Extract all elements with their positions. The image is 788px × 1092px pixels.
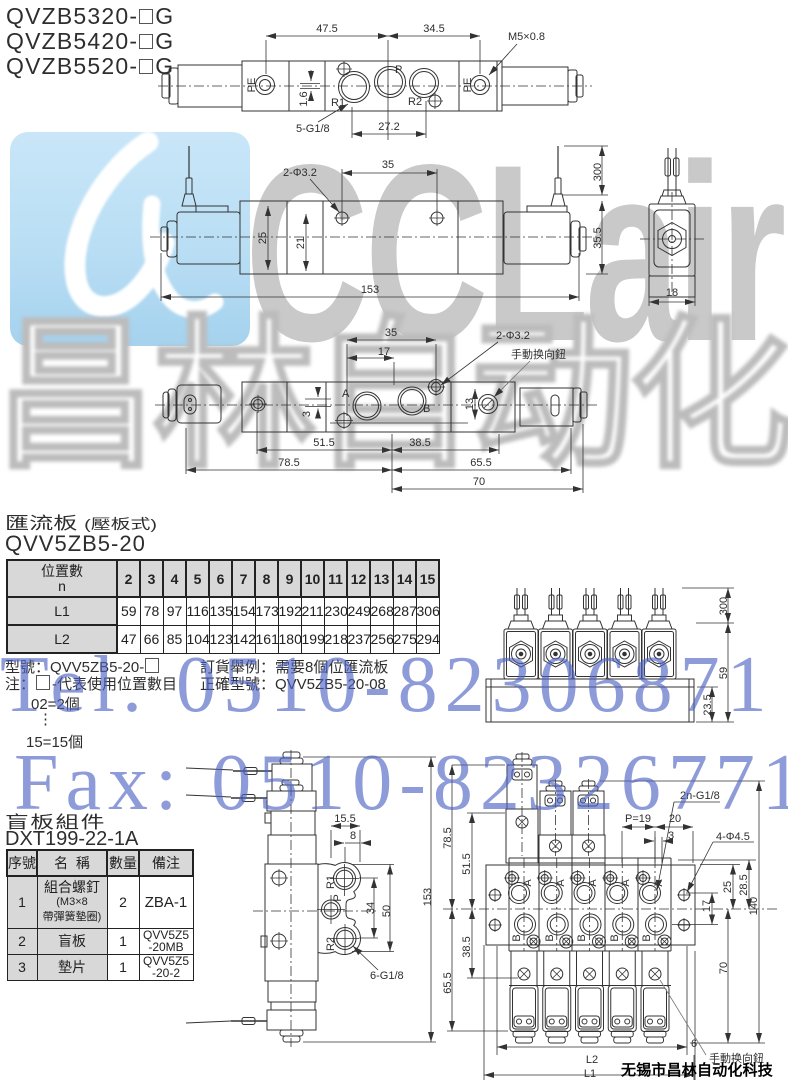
- svg-text:17: 17: [701, 900, 713, 912]
- svg-text:R2: R2: [325, 937, 337, 951]
- svg-text:8: 8: [350, 830, 356, 842]
- svg-text:34.5: 34.5: [423, 23, 444, 35]
- svg-text:手動换向鈕: 手動换向鈕: [511, 347, 566, 361]
- svg-text:25: 25: [722, 881, 734, 893]
- svg-text:4-Φ4.5: 4-Φ4.5: [716, 831, 750, 843]
- svg-text:L2: L2: [586, 1054, 598, 1066]
- svg-text:78.5: 78.5: [278, 457, 299, 469]
- svg-text:35: 35: [385, 327, 397, 339]
- svg-text:2-Φ3.2: 2-Φ3.2: [496, 330, 530, 342]
- svg-text:27.2: 27.2: [378, 121, 399, 133]
- svg-text:B: B: [576, 934, 588, 941]
- svg-text:1.6: 1.6: [298, 91, 310, 106]
- svg-text:35: 35: [382, 159, 394, 171]
- svg-text:A: A: [522, 879, 534, 887]
- svg-text:A: A: [555, 879, 567, 887]
- svg-text:70: 70: [473, 476, 485, 488]
- svg-text:28.5: 28.5: [738, 874, 750, 895]
- svg-text:5-G1/8: 5-G1/8: [296, 123, 330, 135]
- svg-text:153: 153: [422, 888, 434, 906]
- svg-text:M5×0.8: M5×0.8: [508, 31, 545, 43]
- svg-text:13: 13: [464, 398, 476, 410]
- svg-text:65.5: 65.5: [442, 972, 454, 993]
- svg-text:B: B: [423, 403, 430, 415]
- svg-text:51.5: 51.5: [313, 437, 334, 449]
- svg-text:21: 21: [295, 237, 307, 249]
- svg-text:A: A: [342, 388, 350, 400]
- svg-text:47.5: 47.5: [316, 23, 337, 35]
- svg-text:2n-G1/8: 2n-G1/8: [680, 790, 720, 802]
- svg-text:38.5: 38.5: [461, 936, 473, 957]
- svg-text:2-Φ3.2: 2-Φ3.2: [283, 167, 317, 179]
- svg-text:38.5: 38.5: [409, 437, 430, 449]
- svg-text:34: 34: [365, 902, 377, 914]
- svg-text:78.5: 78.5: [442, 827, 454, 848]
- svg-text:50: 50: [381, 905, 393, 917]
- svg-text:B: B: [544, 934, 556, 941]
- svg-text:140: 140: [748, 897, 760, 915]
- svg-text:3: 3: [668, 830, 674, 842]
- svg-text:70: 70: [718, 962, 730, 974]
- svg-text:PE: PE: [462, 78, 474, 93]
- svg-text:A: A: [620, 879, 632, 887]
- svg-text:18: 18: [666, 287, 678, 299]
- svg-text:P=19: P=19: [625, 813, 651, 825]
- svg-text:R2: R2: [408, 96, 422, 108]
- svg-text:R1: R1: [325, 875, 337, 889]
- svg-text:6: 6: [691, 1038, 697, 1050]
- svg-text:P: P: [395, 64, 402, 76]
- svg-text:300: 300: [718, 597, 730, 615]
- svg-text:P: P: [332, 894, 344, 901]
- svg-text:35.5: 35.5: [592, 227, 604, 248]
- svg-text:6-G1/8: 6-G1/8: [370, 970, 404, 982]
- svg-text:3: 3: [301, 411, 313, 417]
- svg-text:51.5: 51.5: [461, 853, 473, 874]
- svg-text:59: 59: [718, 667, 730, 679]
- svg-text:B: B: [641, 934, 653, 941]
- svg-text:25: 25: [257, 232, 269, 244]
- svg-text:L1: L1: [584, 1068, 596, 1080]
- svg-text:B: B: [511, 934, 523, 941]
- svg-text:15.5: 15.5: [334, 813, 355, 825]
- svg-text:23.5: 23.5: [702, 694, 714, 715]
- svg-text:PE: PE: [246, 78, 258, 93]
- svg-text:153: 153: [361, 284, 379, 296]
- svg-text:17: 17: [378, 346, 390, 358]
- svg-text:65.5: 65.5: [470, 457, 491, 469]
- svg-text:B: B: [609, 934, 621, 941]
- svg-text:300: 300: [592, 163, 604, 181]
- svg-text:A: A: [587, 879, 599, 887]
